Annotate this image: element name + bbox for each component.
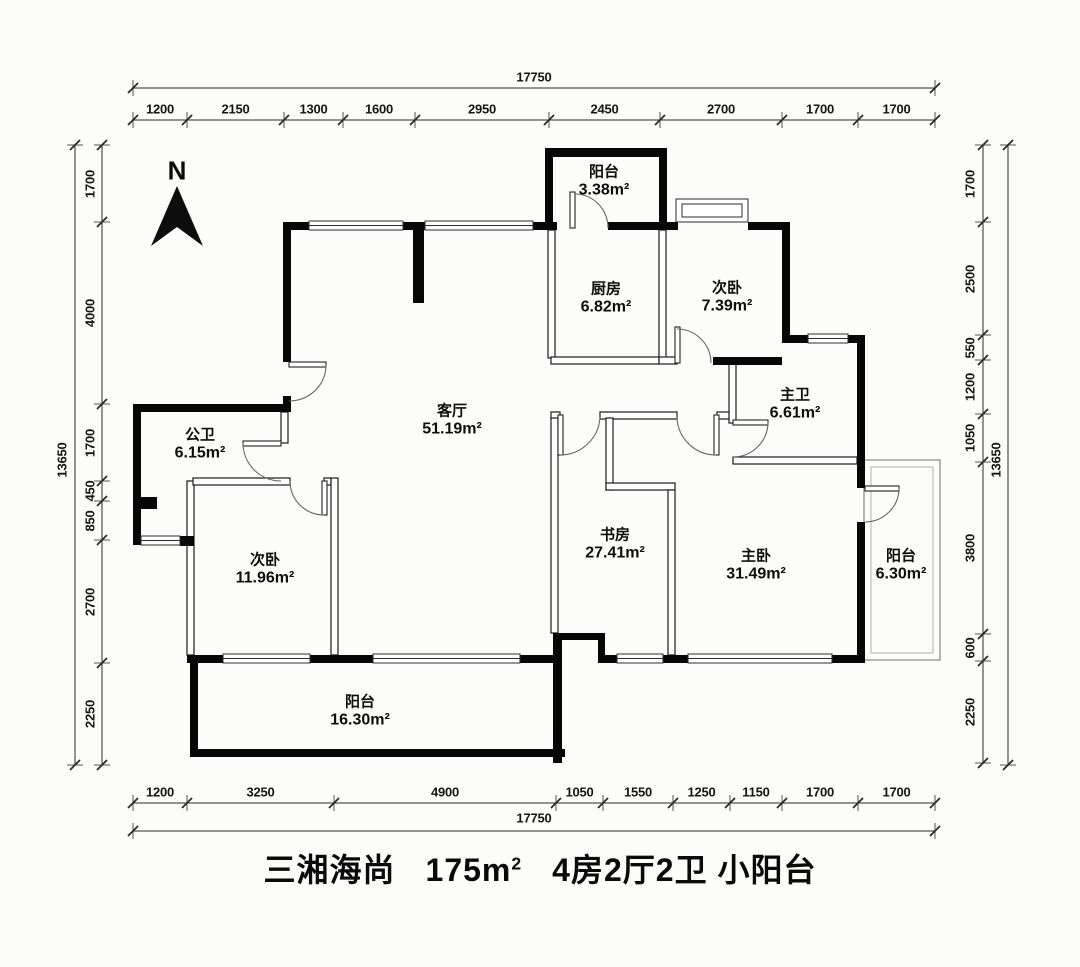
room-name: 主卧 bbox=[726, 549, 786, 566]
room-name: 厨房 bbox=[581, 282, 632, 299]
room-name: 客厅 bbox=[422, 404, 482, 421]
balcony-tag: 小阳台 bbox=[717, 852, 816, 888]
room-area: 7.39m² bbox=[702, 297, 753, 315]
room-area: 11.96m² bbox=[236, 569, 295, 587]
dim-label: 1550 bbox=[624, 785, 652, 800]
room-name: 次卧 bbox=[236, 553, 295, 570]
dim-label: 4900 bbox=[431, 785, 459, 800]
dim-label: 1200 bbox=[146, 785, 174, 800]
door-leaves bbox=[243, 192, 899, 515]
total-area-value: 175 bbox=[426, 852, 482, 888]
dim-label: 2250 bbox=[963, 698, 978, 726]
dim-label: 3250 bbox=[246, 785, 274, 800]
dim-label: 1150 bbox=[742, 785, 769, 800]
dim-label: 13650 bbox=[989, 442, 1004, 477]
dim-label: 2950 bbox=[468, 102, 496, 117]
windows bbox=[141, 199, 848, 663]
dim-label: 2450 bbox=[590, 102, 618, 117]
dim-label: 1250 bbox=[687, 785, 715, 800]
room-label-bedroom-west: 次卧 11.96m² bbox=[236, 553, 295, 588]
room-area: 6.61m² bbox=[770, 404, 821, 422]
room-label-balcony-north: 阳台 3.38m² bbox=[579, 165, 630, 200]
room-label-living-room: 客厅 51.19m² bbox=[422, 404, 482, 439]
dim-label: 1200 bbox=[146, 102, 174, 117]
dim-label: 17750 bbox=[516, 70, 551, 85]
room-label-study: 书房 27.41m² bbox=[585, 528, 645, 563]
dim-label: 1050 bbox=[565, 785, 593, 800]
room-label-balcony-south: 阳台 16.30m² bbox=[330, 695, 390, 730]
dim-label: 13650 bbox=[55, 442, 70, 477]
dim-label: 1700 bbox=[806, 785, 834, 800]
dim-label: 1700 bbox=[83, 169, 98, 197]
dim-label: 1700 bbox=[882, 785, 910, 800]
dim-label: 1200 bbox=[963, 373, 978, 401]
room-name: 主卫 bbox=[770, 388, 821, 405]
room-name: 次卧 bbox=[702, 281, 753, 298]
floor-plan-page: N 阳台 3.38m² 厨房 6.82m² 次卧 7.39m² 主卫 6.61m… bbox=[0, 0, 1080, 967]
room-label-guest-bath: 公卫 6.15m² bbox=[175, 428, 226, 463]
dim-label: 1700 bbox=[963, 169, 978, 197]
room-name: 阳台 bbox=[330, 695, 390, 712]
room-area: 27.41m² bbox=[585, 544, 645, 562]
dim-label: 17750 bbox=[516, 811, 551, 826]
room-area: 6.30m² bbox=[876, 565, 927, 583]
walls bbox=[133, 148, 865, 763]
room-area: 3.38m² bbox=[579, 181, 630, 199]
dim-label: 2700 bbox=[83, 587, 98, 615]
room-area: 31.49m² bbox=[726, 565, 786, 583]
room-name: 书房 bbox=[585, 528, 645, 545]
dim-label: 1700 bbox=[882, 102, 910, 117]
room-name: 公卫 bbox=[175, 428, 226, 445]
dim-label: 1700 bbox=[806, 102, 834, 117]
room-label-balcony-east: 阳台 6.30m² bbox=[876, 549, 927, 584]
north-label: N bbox=[168, 156, 187, 187]
room-label-kitchen: 厨房 6.82m² bbox=[581, 282, 632, 317]
room-area: 51.19m² bbox=[422, 420, 482, 438]
dim-label: 600 bbox=[963, 637, 978, 658]
dim-label: 450 bbox=[83, 480, 98, 501]
dim-label: 1300 bbox=[299, 102, 327, 117]
dim-label: 4000 bbox=[83, 299, 98, 327]
room-label-master-bath: 主卫 6.61m² bbox=[770, 388, 821, 423]
plan-title: 三湘海尚175m24房2厅2卫 小阳台 bbox=[0, 845, 1080, 891]
north-arrow-icon bbox=[151, 186, 203, 246]
total-area-unit: m2 bbox=[482, 852, 522, 888]
dim-label: 2150 bbox=[221, 102, 249, 117]
room-label-bedroom-north: 次卧 7.39m² bbox=[702, 281, 753, 316]
room-area: 6.82m² bbox=[581, 298, 632, 316]
layout-spec: 4房2厅2卫 bbox=[552, 852, 707, 888]
room-area: 6.15m² bbox=[175, 444, 226, 462]
dim-label: 2500 bbox=[963, 264, 978, 292]
room-area: 16.30m² bbox=[330, 711, 390, 729]
dim-label: 1050 bbox=[963, 424, 978, 452]
project-name: 三湘海尚 bbox=[264, 852, 396, 888]
dim-label: 1700 bbox=[83, 428, 98, 456]
dim-label: 850 bbox=[83, 510, 98, 531]
room-label-master-bedroom: 主卧 31.49m² bbox=[726, 549, 786, 584]
dim-label: 2250 bbox=[83, 700, 98, 728]
room-name: 阳台 bbox=[876, 549, 927, 566]
dim-label: 1600 bbox=[365, 102, 393, 117]
dim-label: 550 bbox=[963, 337, 978, 358]
dim-label: 2700 bbox=[707, 102, 735, 117]
dim-label: 3800 bbox=[963, 534, 978, 562]
room-name: 阳台 bbox=[579, 165, 630, 182]
